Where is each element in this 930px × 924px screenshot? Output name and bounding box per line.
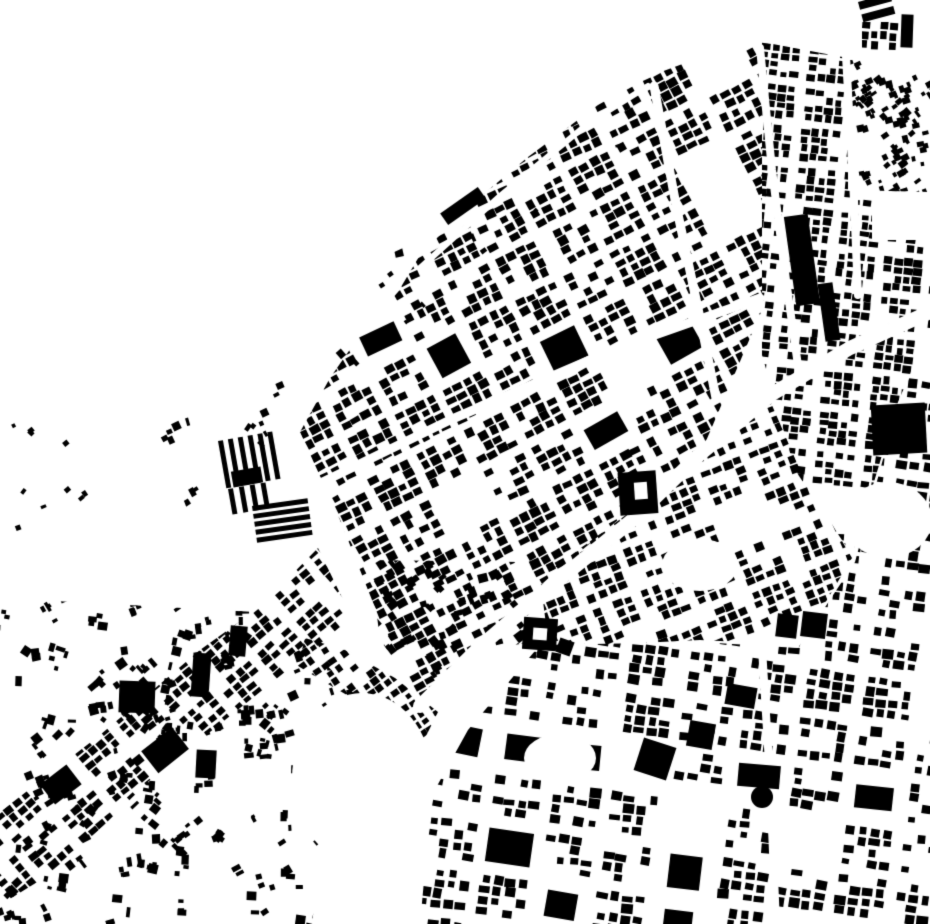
map-stage <box>0 0 930 924</box>
figure-ground-map-canvas <box>0 0 930 924</box>
